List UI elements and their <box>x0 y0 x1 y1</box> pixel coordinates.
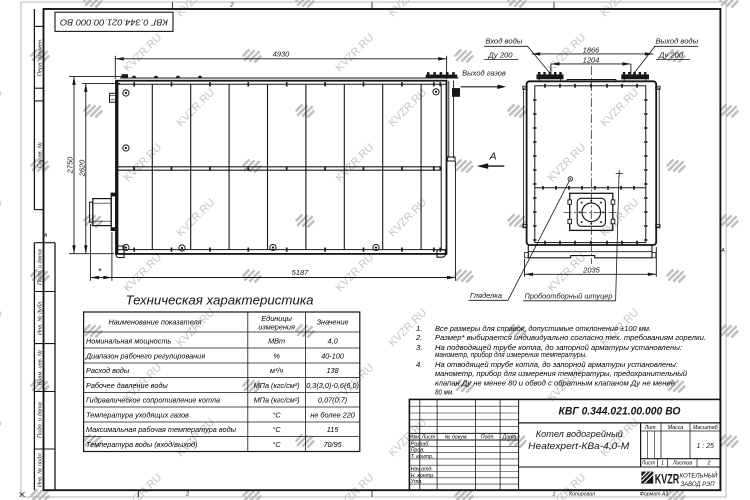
svg-text:°С: °С <box>272 440 281 449</box>
svg-text:Гляделка: Гляделка <box>470 291 502 300</box>
svg-text:40-100: 40-100 <box>321 351 344 360</box>
svg-text:Выход газов: Выход газов <box>462 69 506 78</box>
svg-text:2.: 2. <box>415 333 422 342</box>
svg-text:115: 115 <box>327 425 340 434</box>
svg-text:0,3(3,0)-0,6(6,0): 0,3(3,0)-0,6(6,0) <box>306 381 359 390</box>
svg-text:1: 1 <box>553 492 556 498</box>
svg-text:измерения: измерения <box>258 322 295 331</box>
svg-text:2035: 2035 <box>582 265 601 274</box>
svg-text:А: А <box>720 248 725 254</box>
svg-text:Максимальная рабочая температу: Максимальная рабочая температура воды <box>86 425 237 434</box>
svg-text:Гидравлическое сопротивление к: Гидравлическое сопротивление котла <box>86 395 220 404</box>
svg-text:Утв.: Утв. <box>411 479 423 485</box>
svg-text:KVZR: KVZR <box>655 471 680 486</box>
svg-text:Инв. № подл.: Инв. № подл. <box>37 452 43 487</box>
svg-text:Техническая характеристика: Техническая характеристика <box>126 294 314 308</box>
svg-text:5187: 5187 <box>292 268 310 277</box>
svg-text:4.: 4. <box>416 360 422 369</box>
svg-text:Подп.: Подп. <box>481 434 495 440</box>
svg-text:°С: °С <box>272 410 281 419</box>
svg-text:ЗАВОД РЭП: ЗАВОД РЭП <box>681 481 715 488</box>
svg-text:Расход воды: Расход воды <box>86 366 130 375</box>
svg-text:Подп. и дата: Подп. и дата <box>37 402 43 438</box>
svg-text:Лист: Лист <box>641 460 656 466</box>
svg-text:Нач.отд.: Нач.отд. <box>411 467 433 473</box>
svg-text:*: * <box>98 267 102 277</box>
svg-text:Номинальная мощность: Номинальная мощность <box>86 336 171 345</box>
svg-text:Н. контр.: Н. контр. <box>411 473 435 479</box>
svg-text:Пров.: Пров. <box>411 448 425 454</box>
svg-text:1: 1 <box>661 460 664 466</box>
svg-text:Т. контр.: Т. контр. <box>411 454 434 460</box>
svg-text:Разраб.: Разраб. <box>411 441 430 447</box>
svg-text:1866: 1866 <box>583 45 601 54</box>
svg-text:Дата: Дата <box>501 434 516 440</box>
svg-text:°С: °С <box>272 425 281 434</box>
svg-text:манометр, прибор для измерения: манометр, прибор для измерения температу… <box>435 369 688 378</box>
svg-text:2620: 2620 <box>77 159 86 178</box>
svg-text:1 : 25: 1 : 25 <box>696 443 714 450</box>
svg-text:2: 2 <box>707 460 711 466</box>
svg-text:м³/ч: м³/ч <box>270 366 283 375</box>
svg-text:Выход воды: Выход воды <box>656 37 699 46</box>
svg-text:Размер* выбирается индивидуаль: Размер* выбирается индивидуально согласн… <box>435 333 706 342</box>
svg-text:1204: 1204 <box>583 56 600 65</box>
svg-text:Формат А3: Формат А3 <box>640 492 668 498</box>
svg-text:138: 138 <box>327 366 340 375</box>
svg-text:№ докум.: № докум. <box>445 434 468 440</box>
svg-text:Лит.: Лит. <box>644 425 657 431</box>
svg-text:не более 220: не более 220 <box>310 410 355 419</box>
svg-text:Масштаб: Масштаб <box>693 425 719 431</box>
svg-text:А: А <box>488 151 496 163</box>
svg-text:Масса: Масса <box>668 425 684 431</box>
svg-text:1.: 1. <box>416 324 422 333</box>
svg-text:Рабочее давление воды: Рабочее давление воды <box>86 381 168 390</box>
svg-text:Подп. и дата: Подп. и дата <box>37 249 43 285</box>
svg-text:КВГ 0.344.021.00.000 ВО: КВГ 0.344.021.00.000 ВО <box>559 406 681 418</box>
svg-text:Изм.: Изм. <box>409 434 420 440</box>
svg-text:Листов: Листов <box>672 460 693 466</box>
svg-text:Копировал: Копировал <box>569 492 595 498</box>
svg-text:Инв. № дубл.: Инв. № дубл. <box>37 300 43 335</box>
svg-text:80 мм.: 80 мм. <box>435 387 454 396</box>
svg-text:%: % <box>273 351 280 360</box>
svg-text:3.: 3. <box>416 343 422 352</box>
svg-text:Котел водогрейный: Котел водогрейный <box>536 428 624 439</box>
svg-text:Значение: Значение <box>317 318 349 327</box>
svg-text:МПа (кгс/см²): МПа (кгс/см²) <box>254 395 300 404</box>
svg-text:Температура уходящих газов: Температура уходящих газов <box>86 410 189 419</box>
svg-text:2750: 2750 <box>65 156 74 175</box>
svg-text:МВт: МВт <box>268 336 285 345</box>
svg-text:Все размеры для справок, допус: Все размеры для справок, допустимые откл… <box>435 324 651 333</box>
svg-text:Справ. №: Справ. № <box>37 142 43 168</box>
svg-text:КОТЕЛЬНЫЙ: КОТЕЛЬНЫЙ <box>680 471 718 480</box>
svg-text:КВГ 0.344.021.00.000 ВО: КВГ 0.344.021.00.000 ВО <box>59 17 168 26</box>
svg-text:манометр, прибор для измерения: манометр, прибор для измерения температу… <box>435 350 587 359</box>
svg-text:4930: 4930 <box>273 50 291 59</box>
svg-text:Ду 200: Ду 200 <box>488 51 514 60</box>
svg-text:Пробоотборный штуцер: Пробоотборный штуцер <box>525 292 613 301</box>
svg-text:0,07(0,7): 0,07(0,7) <box>318 395 347 404</box>
svg-text:МПа (кгс/см²): МПа (кгс/см²) <box>254 381 300 390</box>
svg-text:4,0: 4,0 <box>328 336 338 345</box>
svg-text:Heatexpert-КВа-4,0-М: Heatexpert-КВа-4,0-М <box>528 440 629 451</box>
svg-text:клапан Ду не менее 80 и обвод: клапан Ду не менее 80 и обвод с обратным… <box>435 379 675 388</box>
svg-text:Наименование показателя: Наименование показателя <box>108 318 201 327</box>
svg-text:Вход воды: Вход воды <box>486 37 523 46</box>
svg-text:Температура воды (вход/выход): Температура воды (вход/выход) <box>86 440 197 449</box>
svg-text:А: А <box>43 233 48 239</box>
svg-text:Диапазон рабочего регулировани: Диапазон рабочего регулирования <box>85 351 205 360</box>
svg-text:На отводящей трубе котла, до з: На отводящей трубе котла, до запорной ар… <box>435 360 678 369</box>
svg-text:Ду 200: Ду 200 <box>658 51 684 60</box>
svg-text:70/95: 70/95 <box>323 440 342 449</box>
svg-text:Взам. инв. №: Взам. инв. № <box>37 350 43 385</box>
svg-text:Лист: Лист <box>421 434 436 440</box>
svg-text:Перв. примен.: Перв. примен. <box>37 38 43 76</box>
